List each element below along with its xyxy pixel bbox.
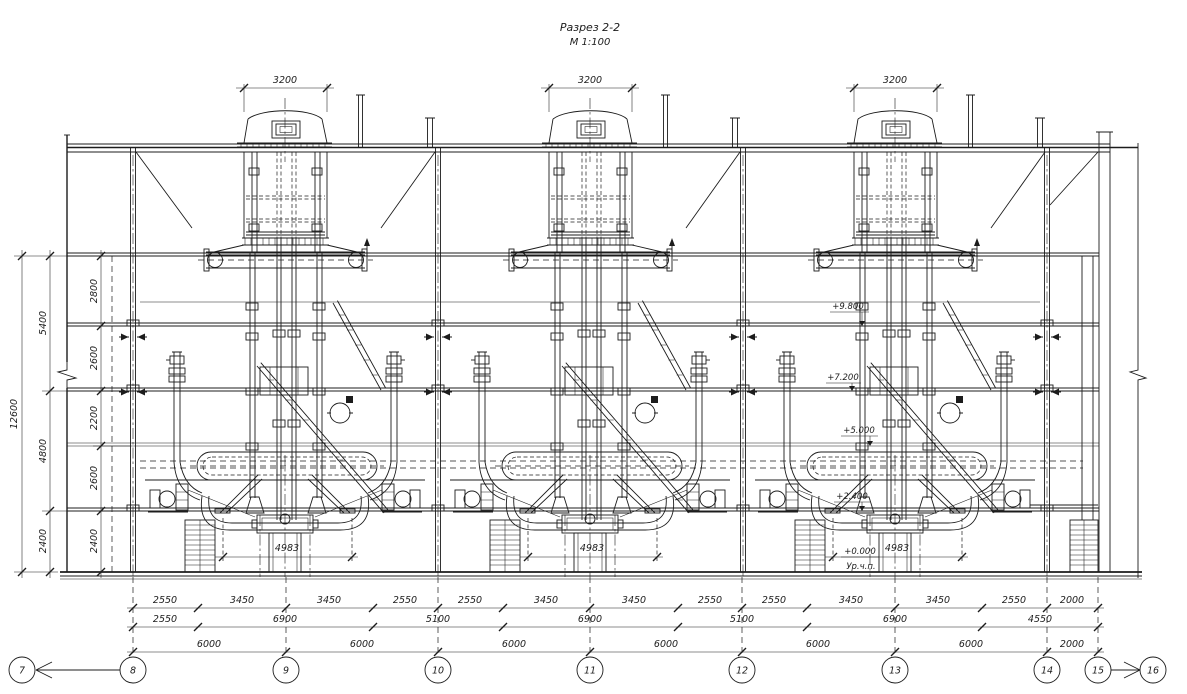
dim-b1-13: 2000 [1060, 595, 1084, 606]
machine-unit-1 [145, 84, 425, 577]
dim-b3-4: 6000 [654, 639, 678, 650]
drawing-canvas: 3200 3200 3200 4983 4983 4983 12600 5400… [0, 0, 1187, 694]
drawing-scale: М 1:100 [570, 37, 611, 48]
dim-base-unit-3: 4983 [885, 543, 909, 554]
dim-left-total: 12600 [9, 399, 20, 429]
dim-b1-7: 3450 [622, 595, 646, 606]
dim-top-unit-2: 3200 [578, 75, 602, 86]
dim-b1-5: 2550 [458, 595, 482, 606]
elevation-2400: +2.400 [836, 492, 867, 502]
dim-left-inner-1: 2800 [89, 279, 100, 303]
floor-level-note: Ур.ч.п. [846, 562, 875, 572]
dim-left-inner-2: 2600 [89, 346, 100, 370]
dim-b1-3: 3450 [317, 595, 341, 606]
machine-unit-3 [755, 84, 1035, 577]
elevation-9800: +9.800 [832, 302, 863, 312]
axis-label-16: 16 [1147, 666, 1159, 677]
axis-label-9: 9 [283, 666, 289, 677]
dim-b3-1: 6000 [197, 639, 221, 650]
column-axis-10 [424, 147, 452, 577]
axis-arrow-right [1111, 662, 1140, 678]
roof [67, 144, 1138, 152]
dim-b1-1: 2550 [153, 595, 177, 606]
axis-arrow-left [36, 662, 120, 678]
axis-label-11: 11 [584, 666, 596, 677]
axis-label-15: 15 [1092, 666, 1104, 677]
dim-b2-4: 6900 [578, 614, 602, 625]
dim-b2-5: 5100 [730, 614, 754, 625]
dim-left-inner-4: 2600 [89, 466, 100, 490]
machine-unit-2 [450, 84, 730, 577]
axis-label-14: 14 [1041, 666, 1053, 677]
dim-b1-8: 2550 [698, 595, 722, 606]
dim-top-unit-1: 3200 [273, 75, 297, 86]
dim-b3-7: 2000 [1060, 639, 1084, 650]
dim-left-inner-3: 2200 [89, 406, 100, 430]
column-axis-8 [119, 147, 147, 577]
drawing-sheet: 3200 3200 3200 4983 4983 4983 12600 5400… [0, 0, 1187, 694]
dim-b1-6: 3450 [534, 595, 558, 606]
break-mark-right [1130, 362, 1146, 388]
dim-b1-10: 3450 [839, 595, 863, 606]
dim-top-unit-3: 3200 [883, 75, 907, 86]
dim-b3-3: 6000 [502, 639, 526, 650]
dim-base-unit-2: 4983 [580, 543, 604, 554]
dim-b3-6: 6000 [959, 639, 983, 650]
vent-stacks-bay-2 [661, 95, 740, 147]
dim-left-outer-1: 5400 [38, 311, 49, 335]
vent-stacks-bay-3 [966, 95, 1045, 147]
dim-b1-2: 3450 [230, 595, 254, 606]
axis-label-13: 13 [889, 666, 901, 677]
elevation-0000: +0.000 [844, 547, 875, 557]
roof-braces [136, 152, 1098, 228]
axis-label-12: 12 [736, 666, 748, 677]
axis-label-8: 8 [130, 666, 136, 677]
dim-b1-11: 3450 [926, 595, 950, 606]
elevation-5000: +5.000 [843, 426, 874, 436]
column-axis-14 [1033, 147, 1061, 577]
left-wall [58, 135, 112, 572]
dim-b2-7: 4550 [1028, 614, 1052, 625]
dim-left-inner-5: 2400 [89, 529, 100, 553]
axis-label-10: 10 [432, 666, 444, 677]
dim-left-outer-3: 2400 [38, 529, 49, 553]
dim-b1-4: 2550 [393, 595, 417, 606]
dim-b2-1: 2550 [153, 614, 177, 625]
dim-b2-2: 6900 [273, 614, 297, 625]
dim-b3-2: 6000 [350, 639, 374, 650]
dim-b1-12: 2550 [1002, 595, 1026, 606]
column-axis-12 [729, 147, 757, 577]
vent-stacks-bay-1 [356, 95, 435, 147]
dim-base-unit-1: 4983 [275, 543, 299, 554]
dim-left-outer-2: 4800 [38, 439, 49, 463]
axis-label-7: 7 [19, 666, 25, 677]
elevation-7200: +7.200 [827, 373, 858, 383]
dim-b2-6: 6900 [883, 614, 907, 625]
dim-b2-3: 5100 [426, 614, 450, 625]
break-mark-left [58, 362, 76, 388]
dim-b1-9: 2550 [762, 595, 786, 606]
left-dimension-chains [14, 250, 130, 578]
dim-b3-5: 6000 [806, 639, 830, 650]
drawing-title: Разрез 2-2 [560, 21, 620, 34]
